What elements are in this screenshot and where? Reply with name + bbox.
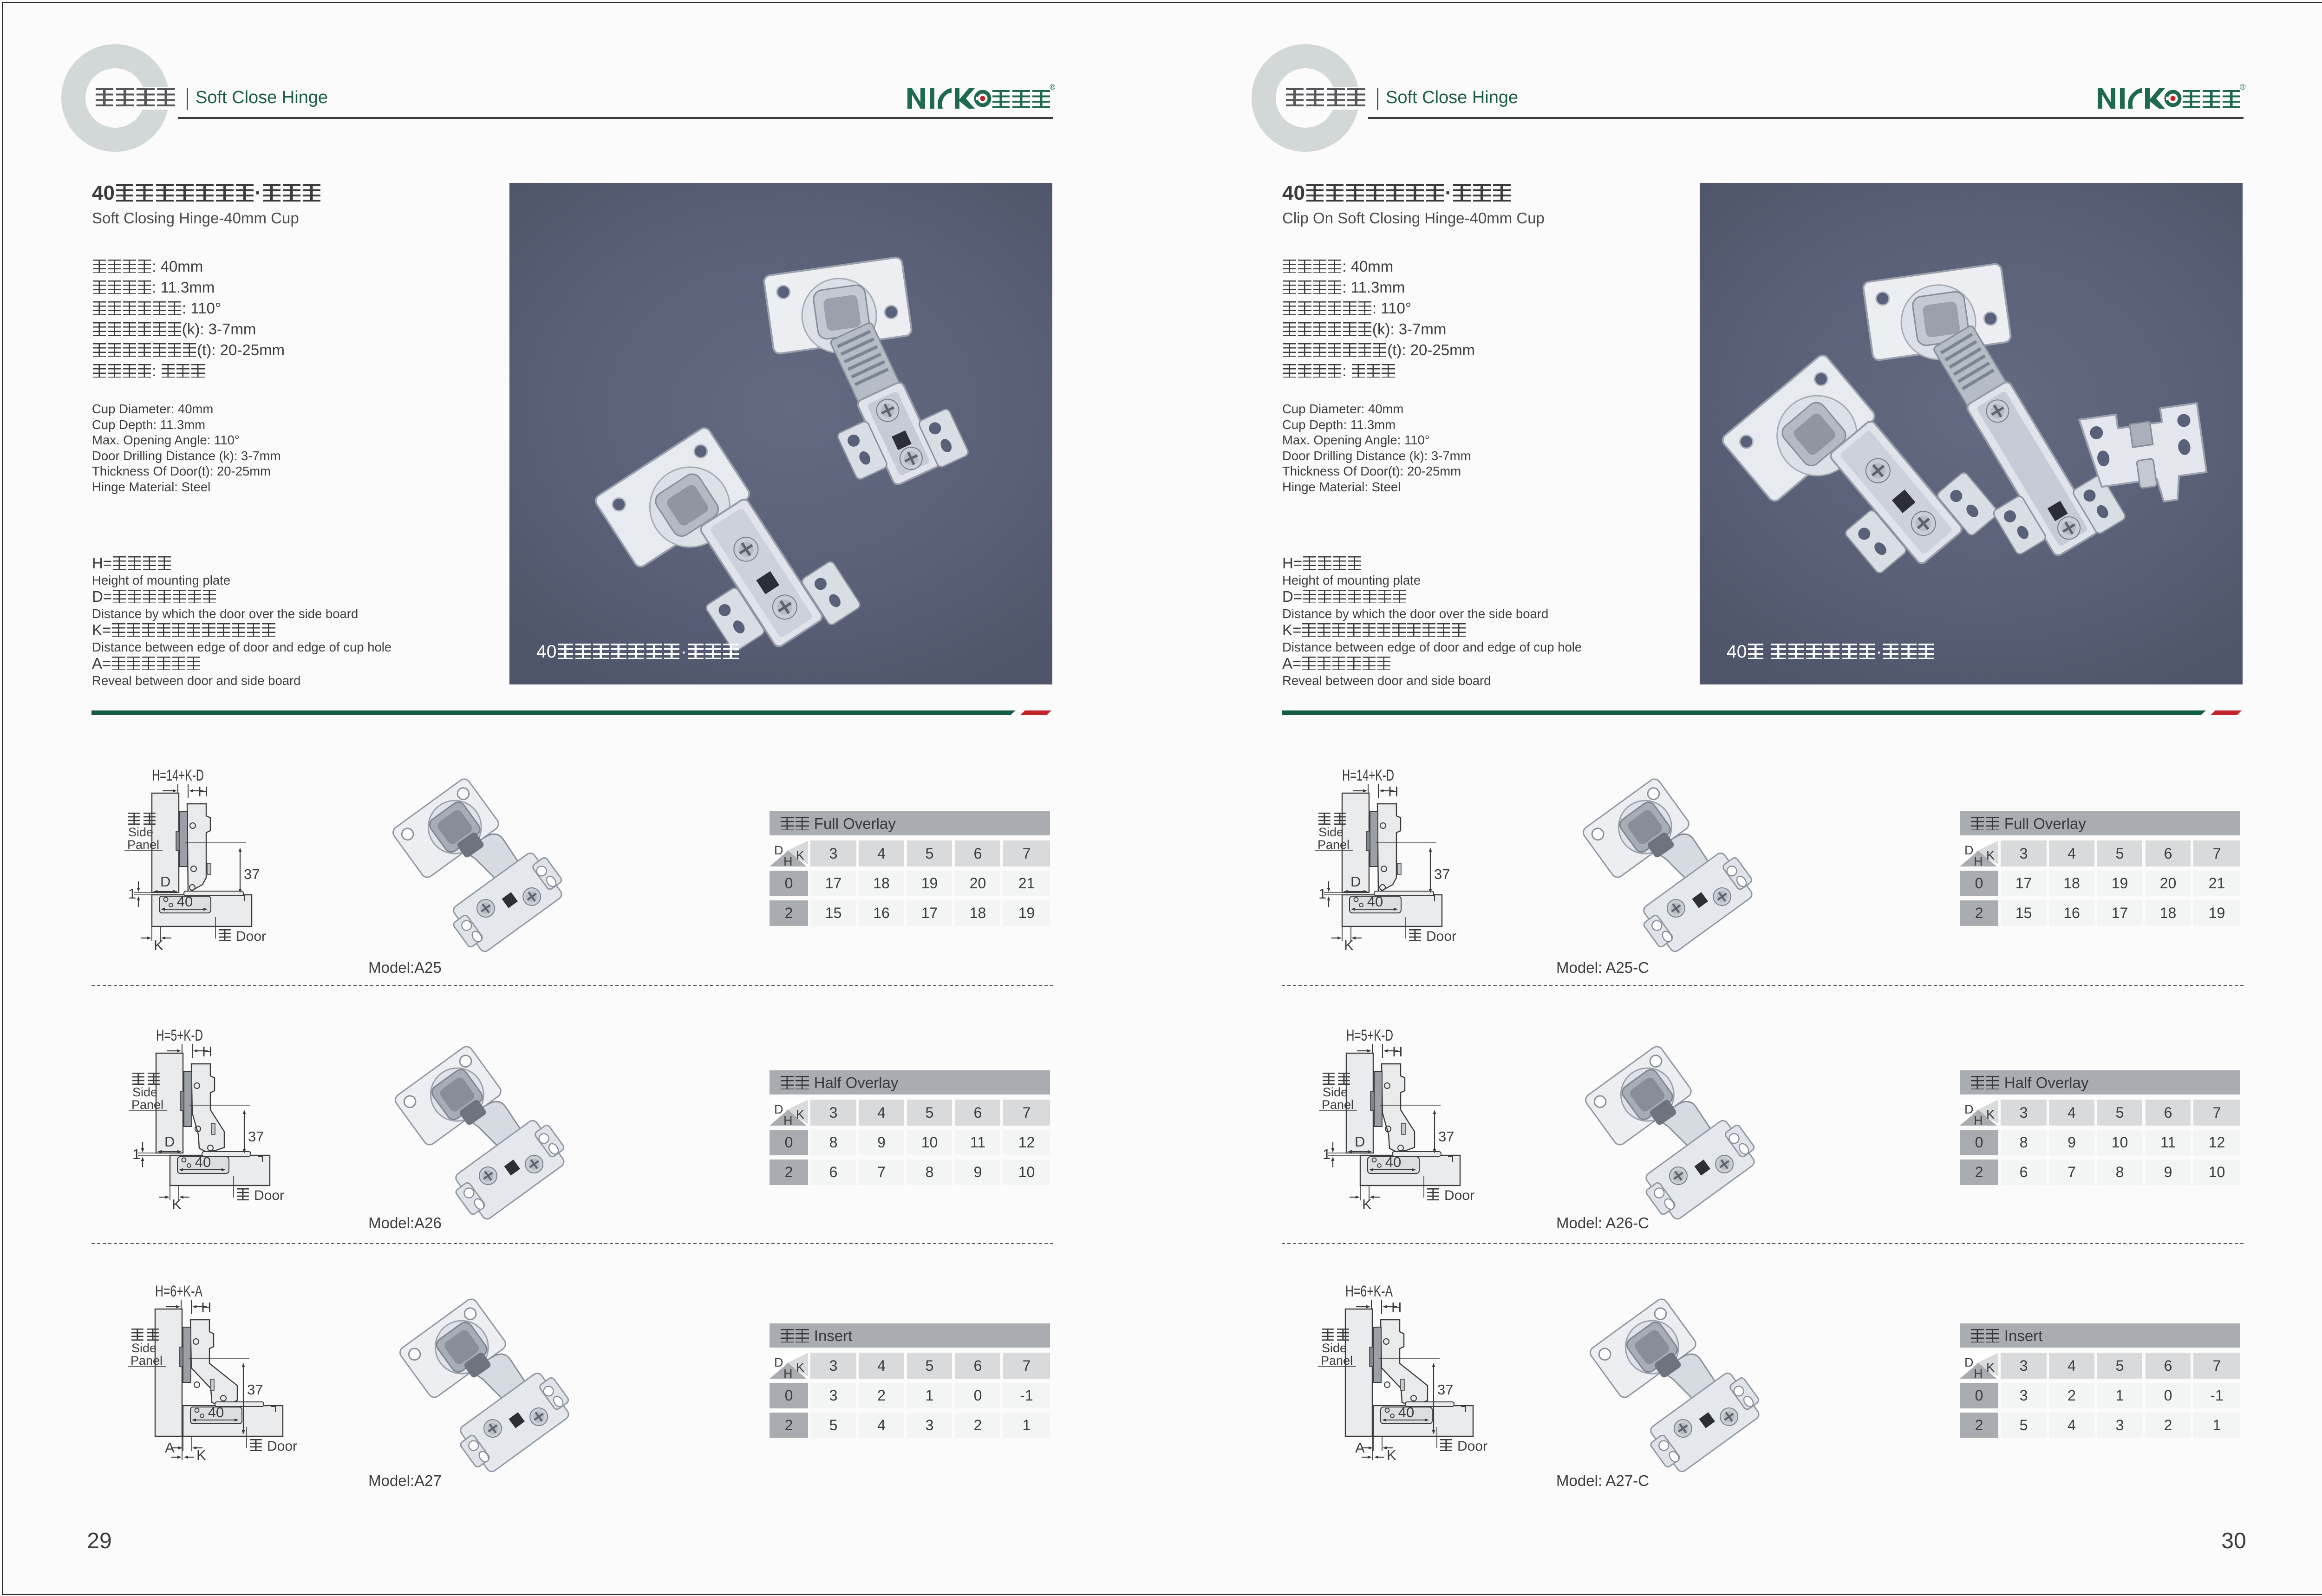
svg-text:H=6+K-A: H=6+K-A [1345,1283,1393,1300]
svg-text:D: D [774,843,783,857]
svg-text:D: D [1964,1355,1974,1369]
svg-text:K: K [1986,848,1995,862]
svg-text:K: K [1387,1447,1396,1463]
svg-text:D: D [160,873,170,890]
svg-text:K: K [154,937,163,953]
svg-text:Panel: Panel [127,838,159,852]
svg-text:37: 37 [1437,1381,1453,1398]
svg-text:Door: Door [1444,1188,1474,1203]
svg-text:D: D [774,1355,783,1369]
svg-text:K: K [1362,1196,1372,1212]
svg-text:D: D [164,1133,175,1150]
svg-text:Side: Side [1322,1341,1347,1355]
svg-text:Side: Side [128,825,153,839]
svg-text:Panel: Panel [1321,1354,1353,1368]
svg-text:H: H [1974,854,1983,866]
svg-text:K: K [172,1196,182,1212]
svg-text:37: 37 [244,866,260,882]
svg-text:Door: Door [254,1188,284,1203]
svg-text:K: K [196,1447,206,1463]
svg-text:Panel: Panel [131,1098,163,1112]
svg-text:Door: Door [1426,929,1456,944]
svg-text:H: H [198,783,208,800]
svg-text:Panel: Panel [1322,1098,1354,1112]
svg-text:K: K [1986,1107,1995,1121]
svg-text:H: H [1388,783,1398,800]
svg-text:D: D [1964,843,1974,857]
svg-text:H=5+K-D: H=5+K-D [156,1027,203,1044]
svg-text:Door: Door [236,929,266,944]
svg-text:H: H [783,854,793,866]
svg-text:Panel: Panel [1318,838,1350,852]
svg-text:K: K [796,1107,804,1121]
svg-text:37: 37 [247,1381,263,1398]
svg-text:H=6+K-A: H=6+K-A [155,1283,202,1300]
svg-text:H=5+K-D: H=5+K-D [1346,1027,1393,1044]
svg-text:1: 1 [1323,1146,1331,1162]
svg-text:Side: Side [1318,825,1344,839]
svg-text:37: 37 [1434,866,1450,882]
svg-text:H: H [1974,1367,1983,1379]
svg-text:1: 1 [132,1146,140,1162]
svg-text:H: H [1391,1299,1402,1316]
svg-text:37: 37 [1438,1128,1454,1145]
svg-text:D: D [1355,1133,1365,1150]
svg-text:Door: Door [1457,1439,1487,1454]
svg-text:A: A [165,1440,175,1456]
svg-text:H: H [783,1114,793,1126]
svg-text:H=14+K-D: H=14+K-D [152,767,204,784]
svg-text:A: A [1355,1440,1365,1456]
svg-text:K: K [1986,1361,1995,1375]
svg-text:1: 1 [128,886,136,902]
svg-text:K: K [1344,937,1354,953]
svg-text:K: K [796,848,804,862]
svg-text:Side: Side [131,1341,157,1355]
svg-text:H: H [201,1299,211,1316]
svg-text:D: D [1964,1102,1974,1116]
svg-text:H: H [783,1367,793,1379]
svg-text:D: D [1350,873,1361,890]
svg-text:Door: Door [267,1439,297,1454]
svg-text:H: H [1974,1114,1983,1126]
svg-text:K: K [796,1361,804,1375]
svg-text:D: D [774,1102,783,1116]
svg-text:Side: Side [132,1085,157,1099]
svg-text:37: 37 [248,1128,264,1145]
svg-text:H: H [1392,1043,1402,1060]
svg-text:H: H [202,1043,212,1060]
svg-text:Side: Side [1323,1085,1348,1099]
svg-text:Panel: Panel [130,1354,163,1368]
svg-text:1: 1 [1318,886,1326,902]
svg-text:H=14+K-D: H=14+K-D [1342,767,1394,784]
